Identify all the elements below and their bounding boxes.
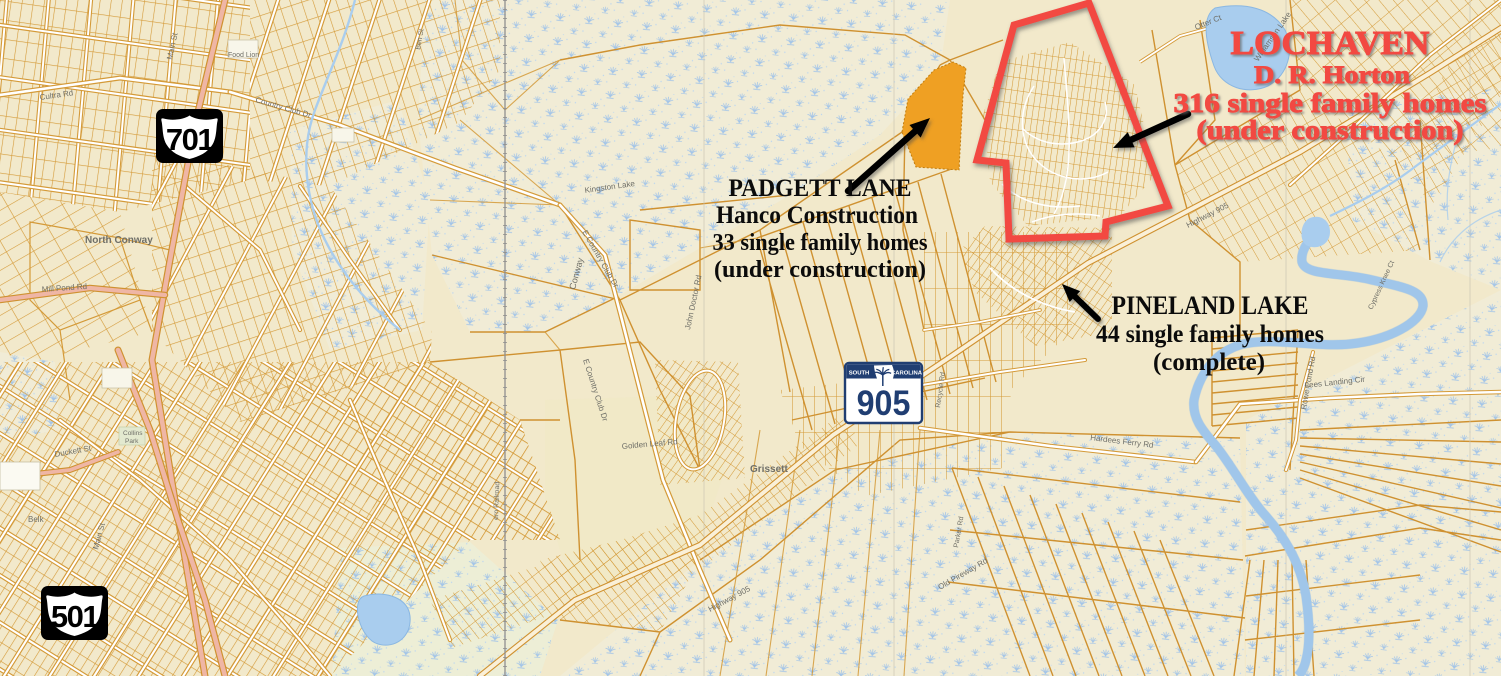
svg-text:501: 501 xyxy=(51,599,99,634)
svg-text:44 single family homes: 44 single family homes xyxy=(1096,321,1324,348)
svg-text:D. R. Horton: D. R. Horton xyxy=(1254,62,1410,89)
svg-text:905: 905 xyxy=(857,385,911,424)
svg-text:PINELAND LAKE: PINELAND LAKE xyxy=(1112,291,1309,320)
svg-text:316 single family homes: 316 single family homes xyxy=(1174,88,1487,118)
svg-text:33 single family homes: 33 single family homes xyxy=(713,230,928,256)
svg-text:Grissett: Grissett xyxy=(750,464,788,475)
svg-text:Belk: Belk xyxy=(28,515,45,524)
svg-text:Food Lion: Food Lion xyxy=(228,52,259,59)
svg-text:Collins: Collins xyxy=(123,430,143,437)
svg-text:Hanco Construction: Hanco Construction xyxy=(716,202,918,229)
svg-text:(under construction): (under construction) xyxy=(714,257,926,283)
svg-text:LOCHAVEN: LOCHAVEN xyxy=(1231,25,1430,62)
svg-text:PADGETT LANE: PADGETT LANE xyxy=(729,175,912,202)
svg-text:North Conway: North Conway xyxy=(85,235,153,246)
svg-text:701: 701 xyxy=(166,122,214,157)
svg-text:CAROLINA: CAROLINA xyxy=(891,371,923,377)
svg-text:(under construction): (under construction) xyxy=(1197,115,1464,145)
svg-text:(complete): (complete) xyxy=(1153,349,1265,376)
svg-text:SOUTH: SOUTH xyxy=(849,371,870,377)
svg-text:Park: Park xyxy=(125,438,139,445)
svg-text:ern Railroad: ern Railroad xyxy=(493,482,501,520)
